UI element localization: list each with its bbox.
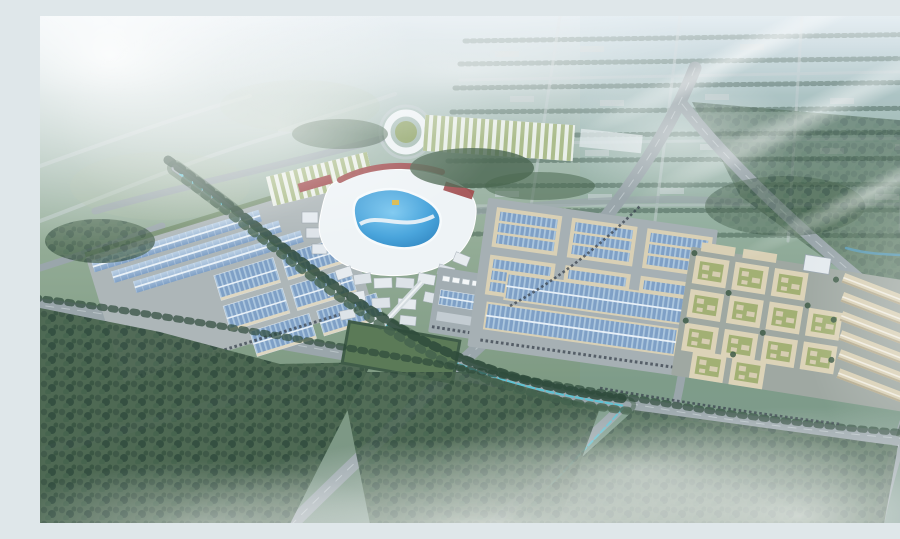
courtyard-block <box>689 350 727 383</box>
canopy-tent <box>462 279 470 285</box>
courtyard-block <box>728 356 766 389</box>
canopy-tent <box>452 277 460 283</box>
courtyard-block <box>681 323 719 356</box>
courtyard-block <box>686 289 724 322</box>
aerial-rendering <box>40 16 900 523</box>
courtyard-block <box>692 255 730 288</box>
tree-cluster <box>485 172 595 200</box>
cloud-puff <box>560 66 800 206</box>
courtyard-block <box>726 295 764 328</box>
rendering-canvas <box>40 16 900 523</box>
canopy-tent <box>442 276 450 282</box>
courtyard-block <box>731 262 769 295</box>
courtyard-block <box>765 302 803 335</box>
